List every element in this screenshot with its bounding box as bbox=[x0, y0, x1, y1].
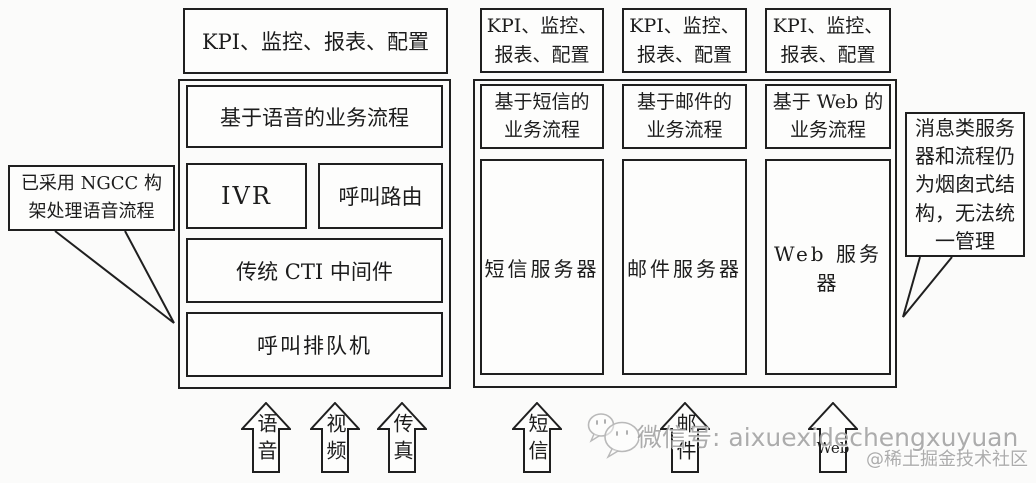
email-server-box: 邮件服务器 bbox=[622, 159, 747, 375]
ivr-label: IVR bbox=[221, 182, 272, 210]
web-process-box: 基于 Web 的 业务流程 bbox=[765, 84, 891, 149]
email-kpi-label: KPI、监控、 报表、配置 bbox=[629, 12, 739, 69]
wechat-icon bbox=[584, 408, 644, 460]
message-note-tail bbox=[903, 257, 952, 317]
ivr-box: IVR bbox=[186, 163, 307, 229]
voice-note-tail bbox=[55, 231, 174, 323]
email-process-box: 基于邮件的 业务流程 bbox=[622, 84, 747, 149]
web-process-label: 基于 Web 的 业务流程 bbox=[773, 89, 883, 144]
web-server-label: Web 服务器 bbox=[767, 238, 889, 296]
sms-server-box: 短信服务器 bbox=[480, 159, 604, 375]
web-server-box: Web 服务器 bbox=[765, 159, 891, 375]
up-arrow-icon bbox=[808, 402, 858, 473]
web-kpi-label: KPI、监控、 报表、配置 bbox=[773, 12, 883, 69]
sms-process-box: 基于短信的 业务流程 bbox=[480, 84, 604, 149]
arrow-label: 邮件 bbox=[675, 413, 695, 467]
call-routing-label: 呼叫路由 bbox=[339, 181, 423, 211]
cti-middleware-box: 传统 CTI 中间件 bbox=[186, 238, 443, 303]
architecture-diagram: KPI、监控、报表、配置 基于语音的业务流程 IVR 呼叫路由 传统 CTI 中… bbox=[0, 0, 1036, 483]
voice-note-callout: 已采用 NGCC 构 架处理语音流程 bbox=[8, 165, 175, 231]
arrow-label: Web bbox=[817, 441, 850, 456]
web-kpi-box: KPI、监控、 报表、配置 bbox=[765, 8, 891, 73]
watermark-community: @稀土掘金技术社区 bbox=[866, 445, 1028, 471]
call-routing-box: 呼叫路由 bbox=[318, 163, 443, 229]
sms-kpi-box: KPI、监控、 报表、配置 bbox=[480, 8, 604, 73]
sms-kpi-label: KPI、监控、 报表、配置 bbox=[487, 12, 597, 69]
email-kpi-box: KPI、监控、 报表、配置 bbox=[622, 8, 747, 73]
voice-kpi-box: KPI、监控、报表、配置 bbox=[183, 8, 448, 74]
message-note-callout: 消息类服务 器和流程仍 为烟囱式结 构，无法统 一管理 bbox=[905, 112, 1025, 257]
call-queue-label: 呼叫排队机 bbox=[257, 330, 372, 360]
message-note-text: 消息类服务 器和流程仍 为烟囱式结 构，无法统 一管理 bbox=[915, 114, 1015, 256]
email-process-label: 基于邮件的 业务流程 bbox=[637, 89, 732, 144]
arrow-label: 语音 bbox=[256, 413, 276, 467]
arrow-label: 短信 bbox=[527, 413, 547, 467]
arrow-sms: 短信 bbox=[512, 402, 562, 473]
cti-middleware-label: 传统 CTI 中间件 bbox=[236, 256, 393, 286]
arrow-video: 视频 bbox=[310, 402, 360, 473]
voice-process-box: 基于语音的业务流程 bbox=[186, 85, 443, 148]
call-queue-box: 呼叫排队机 bbox=[186, 312, 443, 377]
email-server-label: 邮件服务器 bbox=[627, 253, 742, 282]
arrow-email: 邮件 bbox=[660, 402, 710, 473]
arrow-web: Web bbox=[808, 402, 858, 473]
sms-process-label: 基于短信的 业务流程 bbox=[494, 89, 589, 144]
arrow-fax: 传真 bbox=[377, 402, 427, 473]
voice-process-label: 基于语音的业务流程 bbox=[220, 102, 409, 132]
arrow-label: 传真 bbox=[392, 413, 412, 467]
voice-kpi-label: KPI、监控、报表、配置 bbox=[202, 26, 429, 56]
sms-server-label: 短信服务器 bbox=[485, 253, 600, 282]
voice-note-text: 已采用 NGCC 构 架处理语音流程 bbox=[21, 170, 162, 226]
arrow-voice: 语音 bbox=[241, 402, 291, 473]
arrow-label: 视频 bbox=[325, 413, 345, 467]
